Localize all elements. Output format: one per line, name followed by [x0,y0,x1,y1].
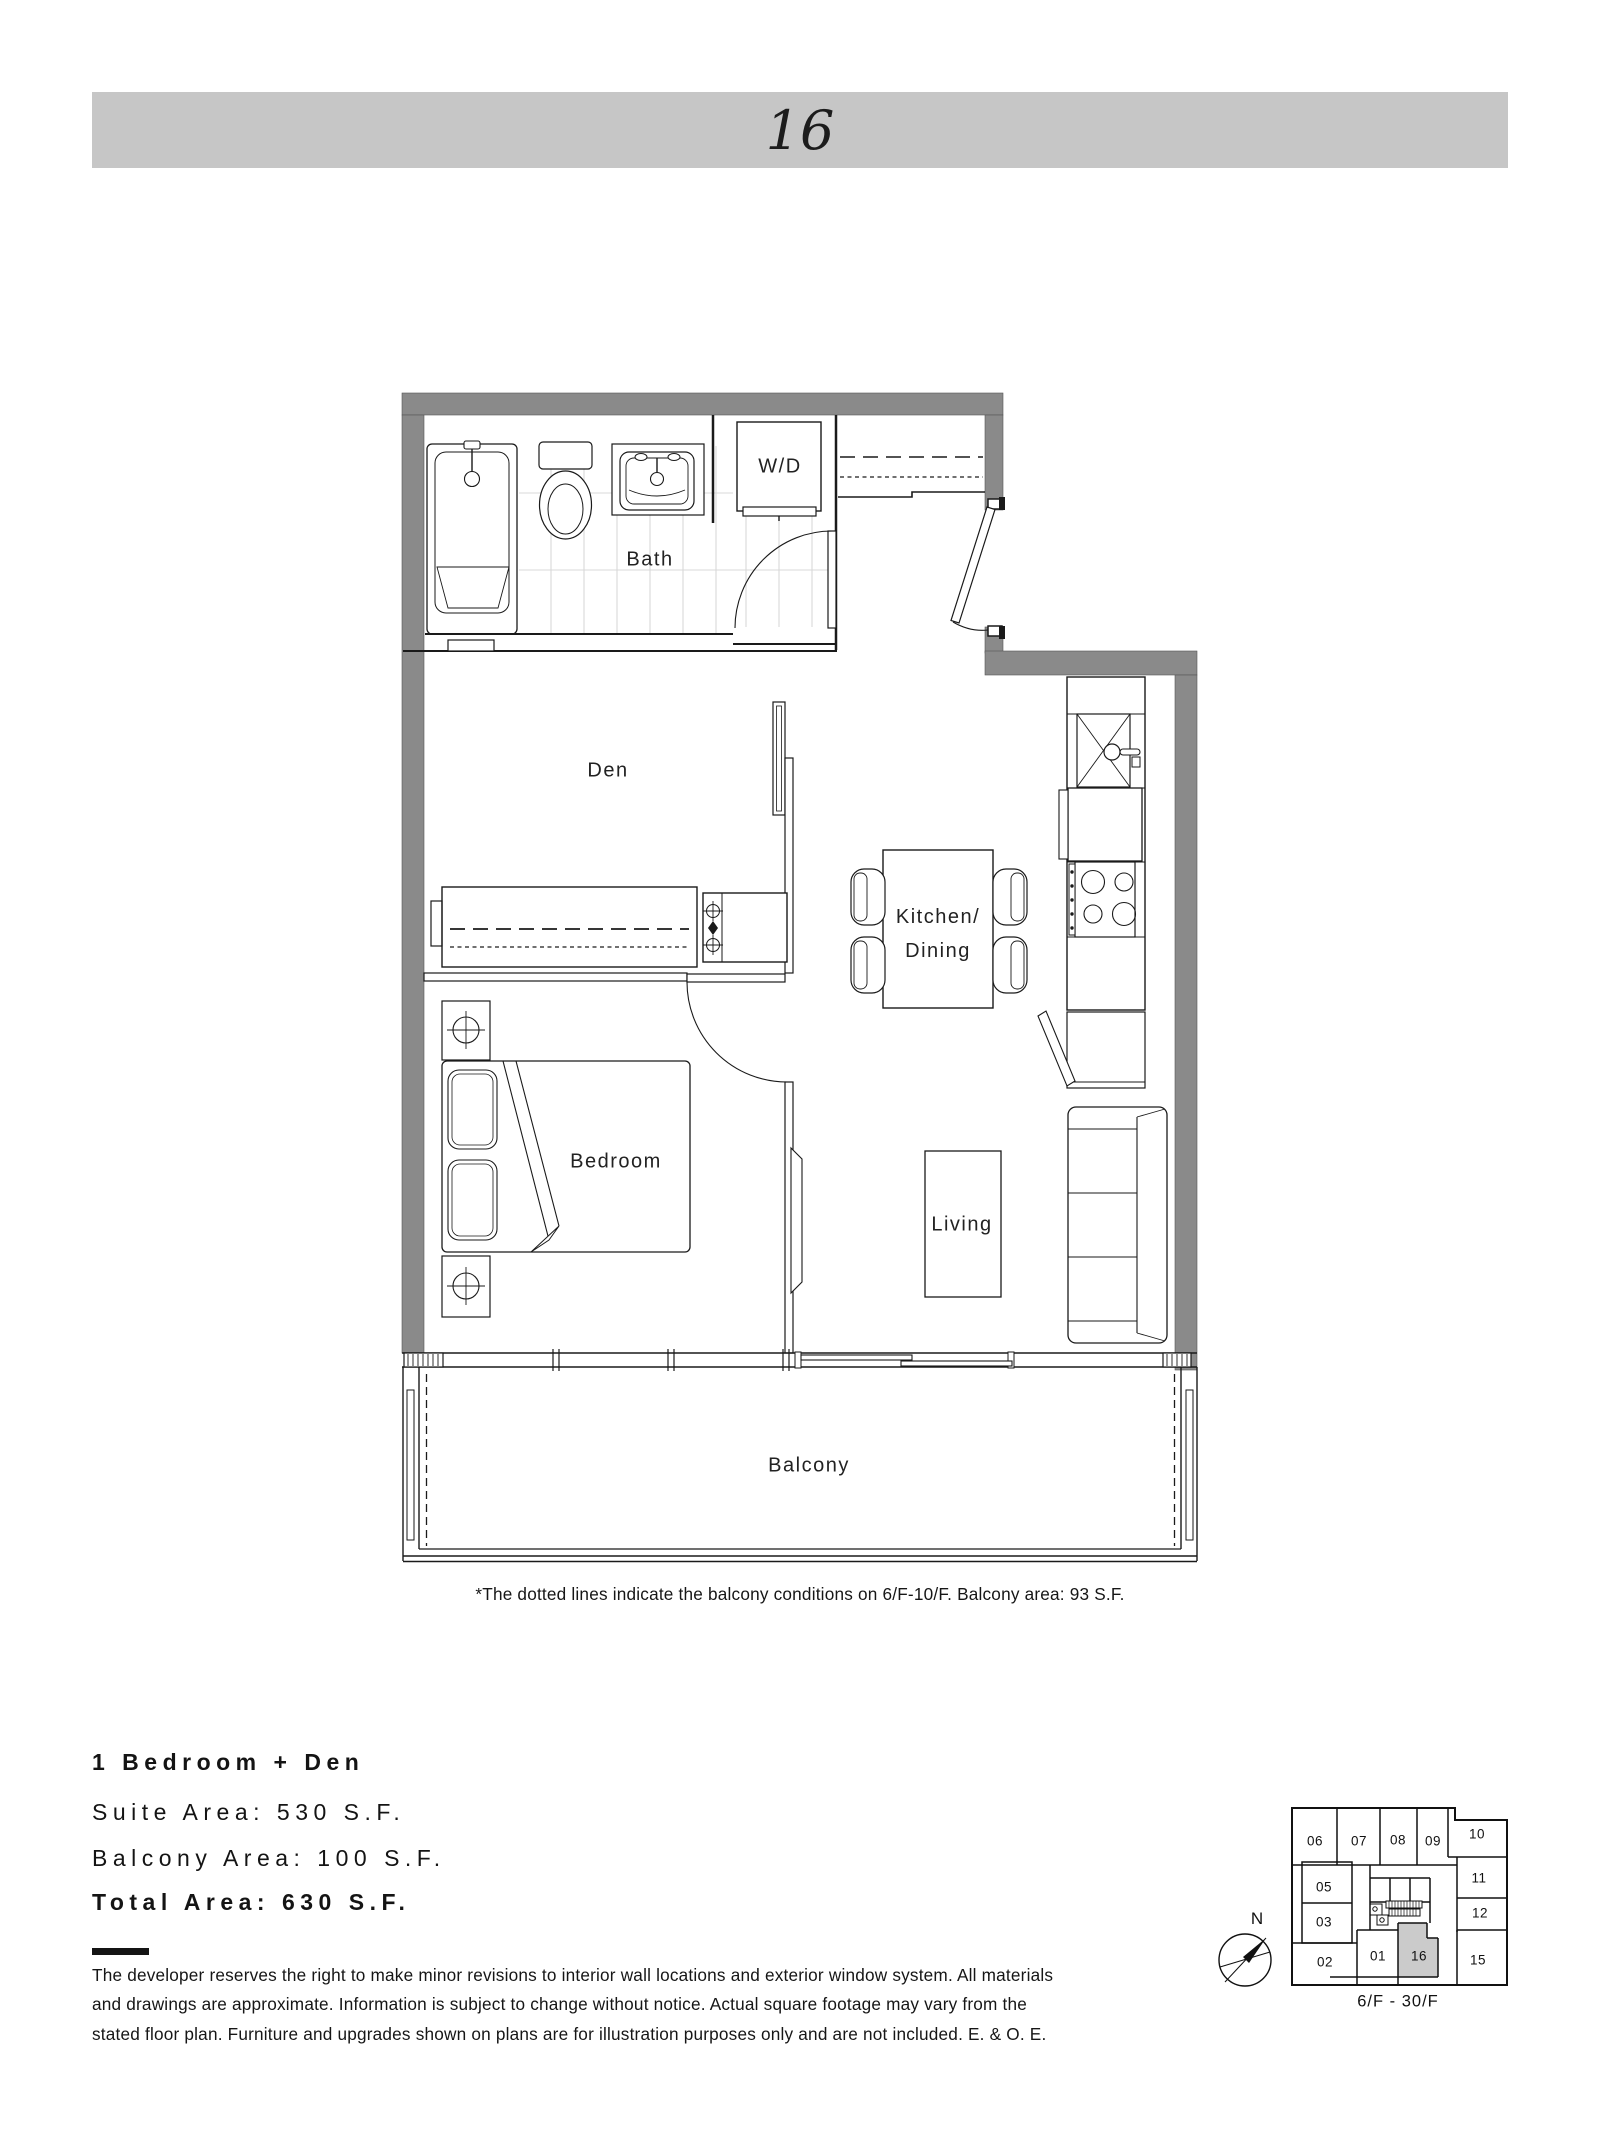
toilet [539,442,592,539]
bath-sink [612,444,704,515]
cooktop [1069,862,1136,937]
keyplan-unit-07: 07 [1351,1834,1367,1849]
nightstand [442,1256,490,1317]
compass-north-label: N [1251,1909,1263,1929]
nightstand [442,1001,490,1060]
keyplan-unit-02: 02 [1317,1955,1333,1970]
room-label-wd: W/D [758,456,801,479]
den-pocket-door [773,702,785,815]
divider-rule [92,1948,149,1955]
plan-type-title: 1 Bedroom + Den [92,1749,364,1776]
room-label-bath: Bath [626,549,673,572]
keyplan-unit-16: 16 [1411,1949,1427,1964]
compass-icon [1219,1934,1271,1986]
unit-number-banner: 16 [92,94,1508,170]
keyplan-unit-10: 10 [1469,1827,1485,1842]
kitchen-label-line1: Kitchen/ [896,900,980,934]
tv [791,1148,802,1293]
keyplan-unit-01: 01 [1370,1949,1386,1964]
balcony-area-line: Balcony Area: 100 S.F. [92,1845,446,1872]
den-closet [431,887,787,967]
keyplan-elevator-core [1370,1901,1422,1925]
total-area-line: Total Area: 630 S.F. [92,1889,410,1916]
disclaimer-text: The developer reserves the right to make… [92,1961,1192,2049]
kitchen-fixtures [851,677,1145,1088]
room-label-kitchen-dining: Kitchen/ Dining [896,900,980,968]
entry-door [951,497,1005,639]
keyplan-floors-label: 6/F - 30/F [1357,1993,1439,2012]
room-label-den: Den [587,760,628,783]
keyplan-unit-08: 08 [1390,1833,1406,1848]
sliding-door [801,1355,912,1360]
keyplan-unit-03: 03 [1316,1915,1332,1930]
keyplan-unit-06: 06 [1307,1834,1323,1849]
mechanical-closet [703,893,787,962]
keyplan-unit-11: 11 [1471,1871,1486,1886]
room-label-bedroom: Bedroom [570,1151,662,1174]
bedroom-door [687,974,787,1082]
window-wall [402,1349,1197,1371]
keyplan-unit-15: 15 [1470,1953,1486,1968]
keyplan-unit-09: 09 [1425,1834,1441,1849]
floorplan-drawing [0,0,1600,2149]
bath-door [735,531,836,628]
keyplan-unit-12: 12 [1472,1906,1488,1921]
corner-cabinet [1038,1011,1145,1088]
room-label-balcony: Balcony [768,1455,850,1478]
keyplan-unit-05: 05 [1316,1880,1332,1895]
fridge [1059,788,1142,861]
bath-fixtures [427,441,704,634]
suite-area-line: Suite Area: 530 S.F. [92,1799,405,1826]
kitchen-label-line2: Dining [896,934,980,968]
floorplan-page: 16 Bath W/D Den Kitchen/ Dining Bedroom … [0,0,1600,2149]
balcony-note: *The dotted lines indicate the balcony c… [475,1584,1124,1605]
room-label-living: Living [931,1214,992,1237]
sofa [1068,1107,1167,1343]
